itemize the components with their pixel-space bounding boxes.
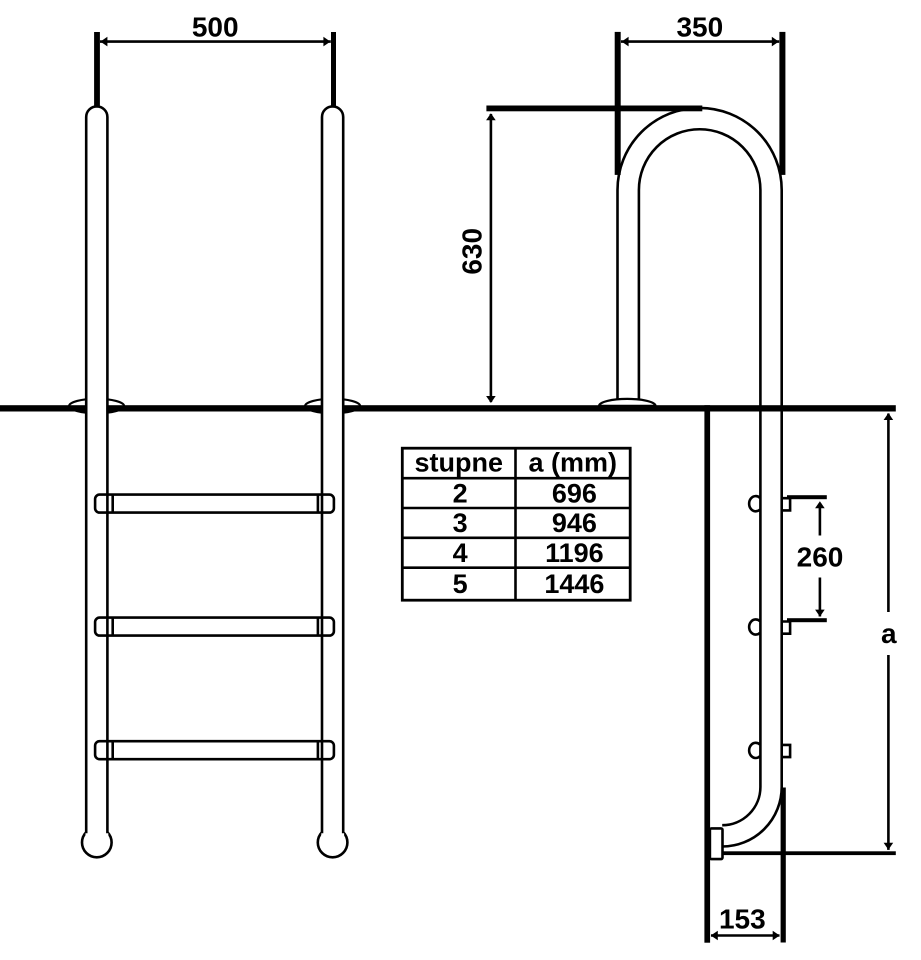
svg-text:4: 4: [453, 538, 468, 568]
svg-text:946: 946: [552, 508, 597, 538]
svg-text:350: 350: [676, 12, 723, 43]
svg-text:696: 696: [552, 478, 597, 508]
svg-text:1196: 1196: [545, 538, 604, 568]
svg-text:a: a: [881, 618, 897, 649]
svg-text:630: 630: [456, 228, 487, 275]
svg-text:5: 5: [453, 569, 468, 599]
svg-text:260: 260: [797, 542, 844, 573]
svg-text:2: 2: [453, 478, 468, 508]
svg-text:3: 3: [453, 508, 468, 538]
svg-text:a (mm): a (mm): [529, 448, 618, 478]
svg-text:153: 153: [719, 904, 766, 935]
svg-text:500: 500: [192, 12, 239, 43]
svg-text:stupne: stupne: [415, 448, 504, 478]
svg-text:1446: 1446: [544, 569, 604, 599]
